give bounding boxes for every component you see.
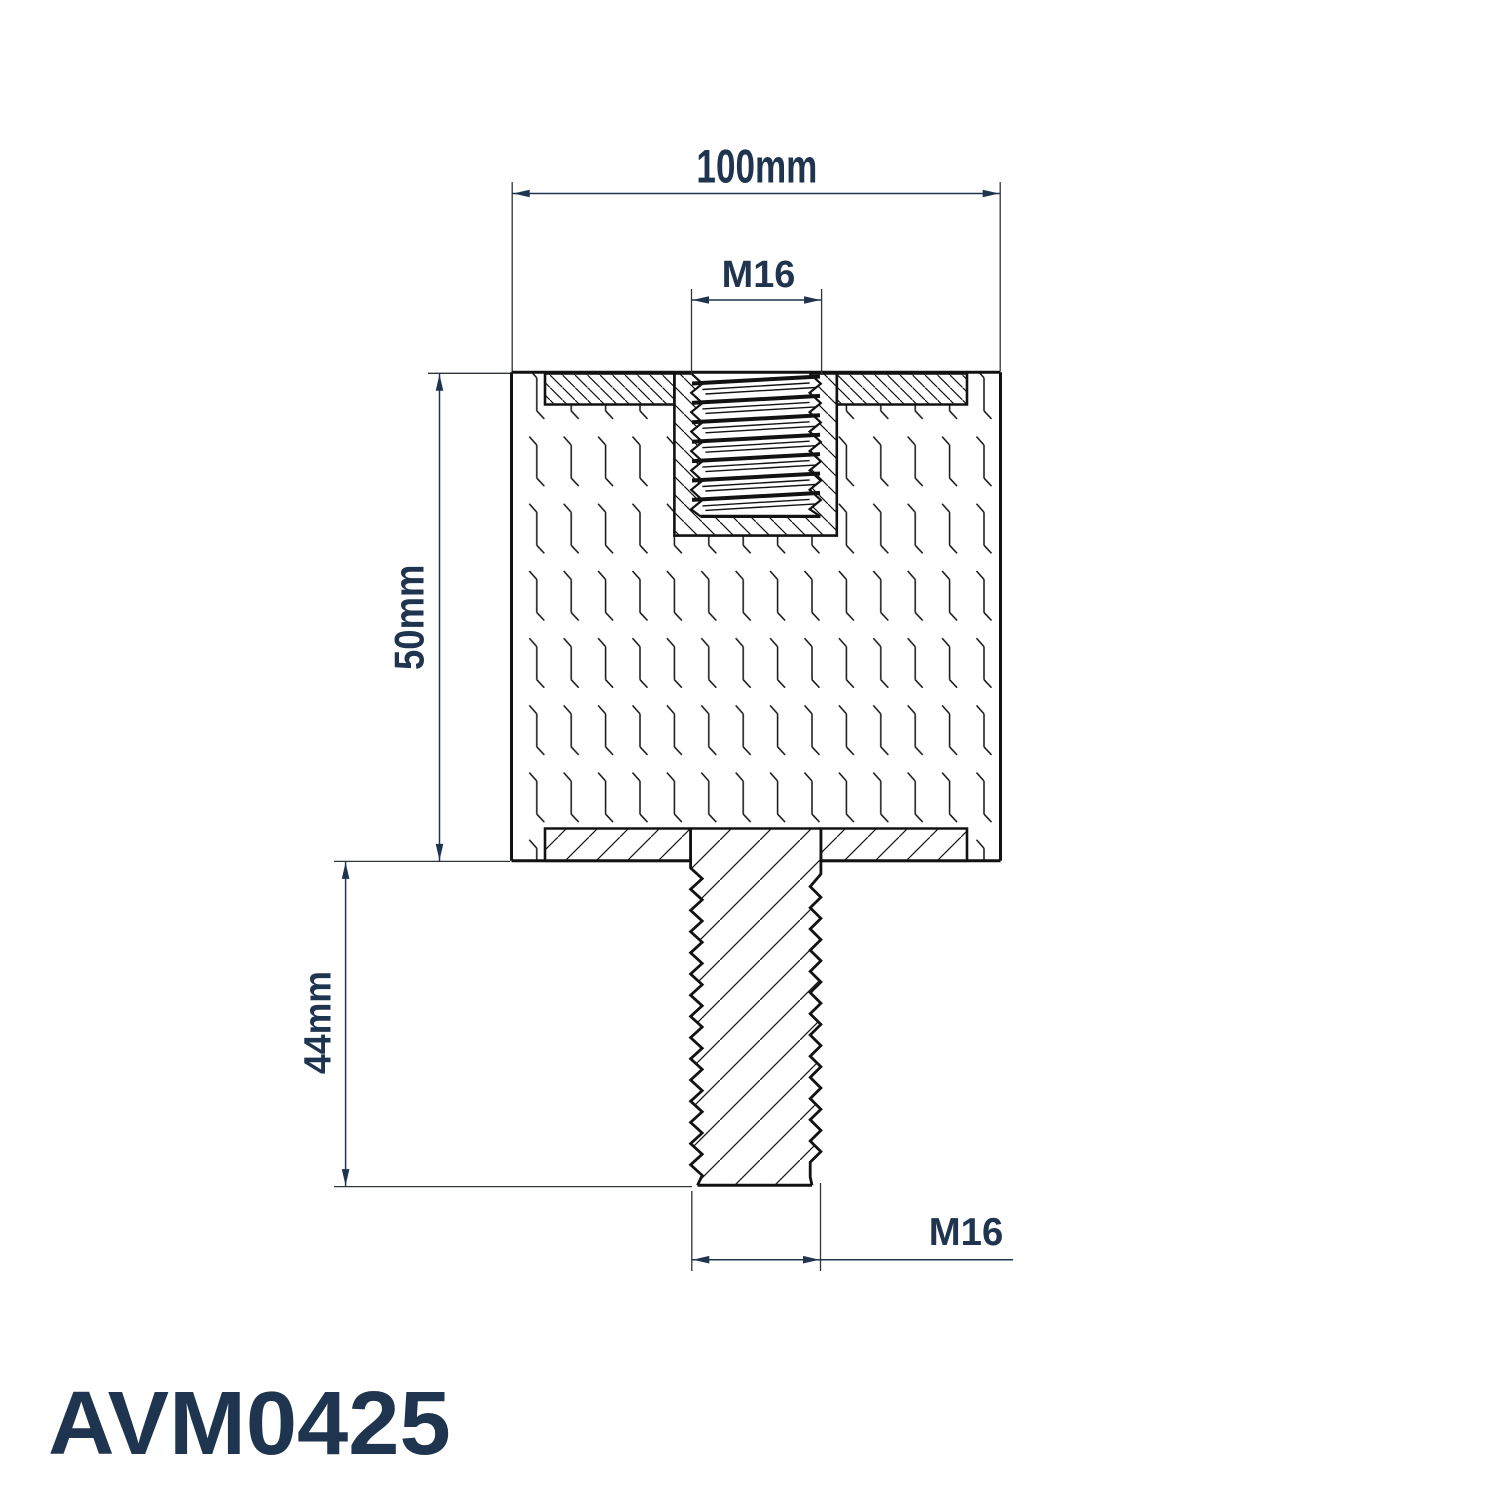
- svg-text:M16: M16: [929, 1210, 1003, 1253]
- svg-text:M16: M16: [722, 254, 796, 296]
- svg-text:100mm: 100mm: [696, 139, 817, 192]
- svg-text:AVM0425: AVM0425: [48, 1374, 451, 1474]
- svg-text:50mm: 50mm: [386, 565, 433, 670]
- svg-text:44mm: 44mm: [296, 971, 338, 1074]
